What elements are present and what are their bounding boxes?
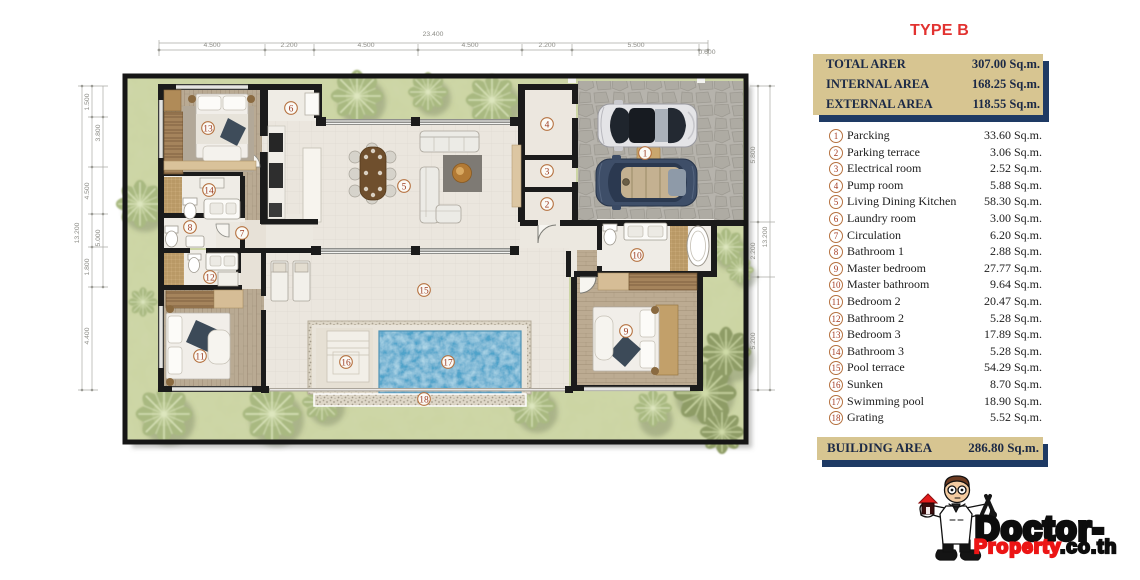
svg-text:16: 16 [341,358,351,368]
svg-text:2.200: 2.200 [538,42,555,49]
svg-text:13.200: 13.200 [74,222,81,243]
svg-text:4.500: 4.500 [357,42,374,49]
svg-text:10: 10 [632,251,642,261]
svg-text:15: 15 [419,286,429,296]
svg-text:5.000: 5.000 [95,229,102,246]
svg-text:9: 9 [624,327,629,337]
svg-text:5.800: 5.800 [750,146,757,163]
svg-text:4.400: 4.400 [84,327,91,344]
svg-text:12: 12 [205,273,215,283]
svg-text:2.200: 2.200 [750,242,757,259]
svg-text:Property.co.th: Property.co.th [974,536,1117,558]
svg-text:4.500: 4.500 [461,42,478,49]
svg-text:23.400: 23.400 [423,31,444,38]
svg-text:8: 8 [188,223,193,233]
svg-text:7: 7 [240,229,245,239]
svg-text:18: 18 [419,395,429,405]
svg-text:14: 14 [204,186,214,196]
svg-text:6: 6 [289,104,294,114]
svg-text:3: 3 [545,167,550,177]
svg-text:3.800: 3.800 [95,124,102,141]
svg-text:5.500: 5.500 [627,42,644,49]
svg-text:17: 17 [443,358,453,368]
svg-text:5.200: 5.200 [750,332,757,349]
svg-text:4.500: 4.500 [84,182,91,199]
svg-text:13: 13 [203,124,213,134]
svg-text:0.600: 0.600 [698,49,715,56]
svg-text:1.800: 1.800 [84,258,91,275]
svg-text:4.500: 4.500 [203,42,220,49]
svg-text:11: 11 [195,352,204,362]
svg-text:5: 5 [402,182,407,192]
svg-text:2.200: 2.200 [280,42,297,49]
svg-text:4: 4 [545,120,550,130]
svg-text:1.500: 1.500 [84,93,91,110]
svg-text:1: 1 [643,149,648,159]
svg-text:13.200: 13.200 [762,226,769,247]
svg-text:2: 2 [545,200,550,210]
